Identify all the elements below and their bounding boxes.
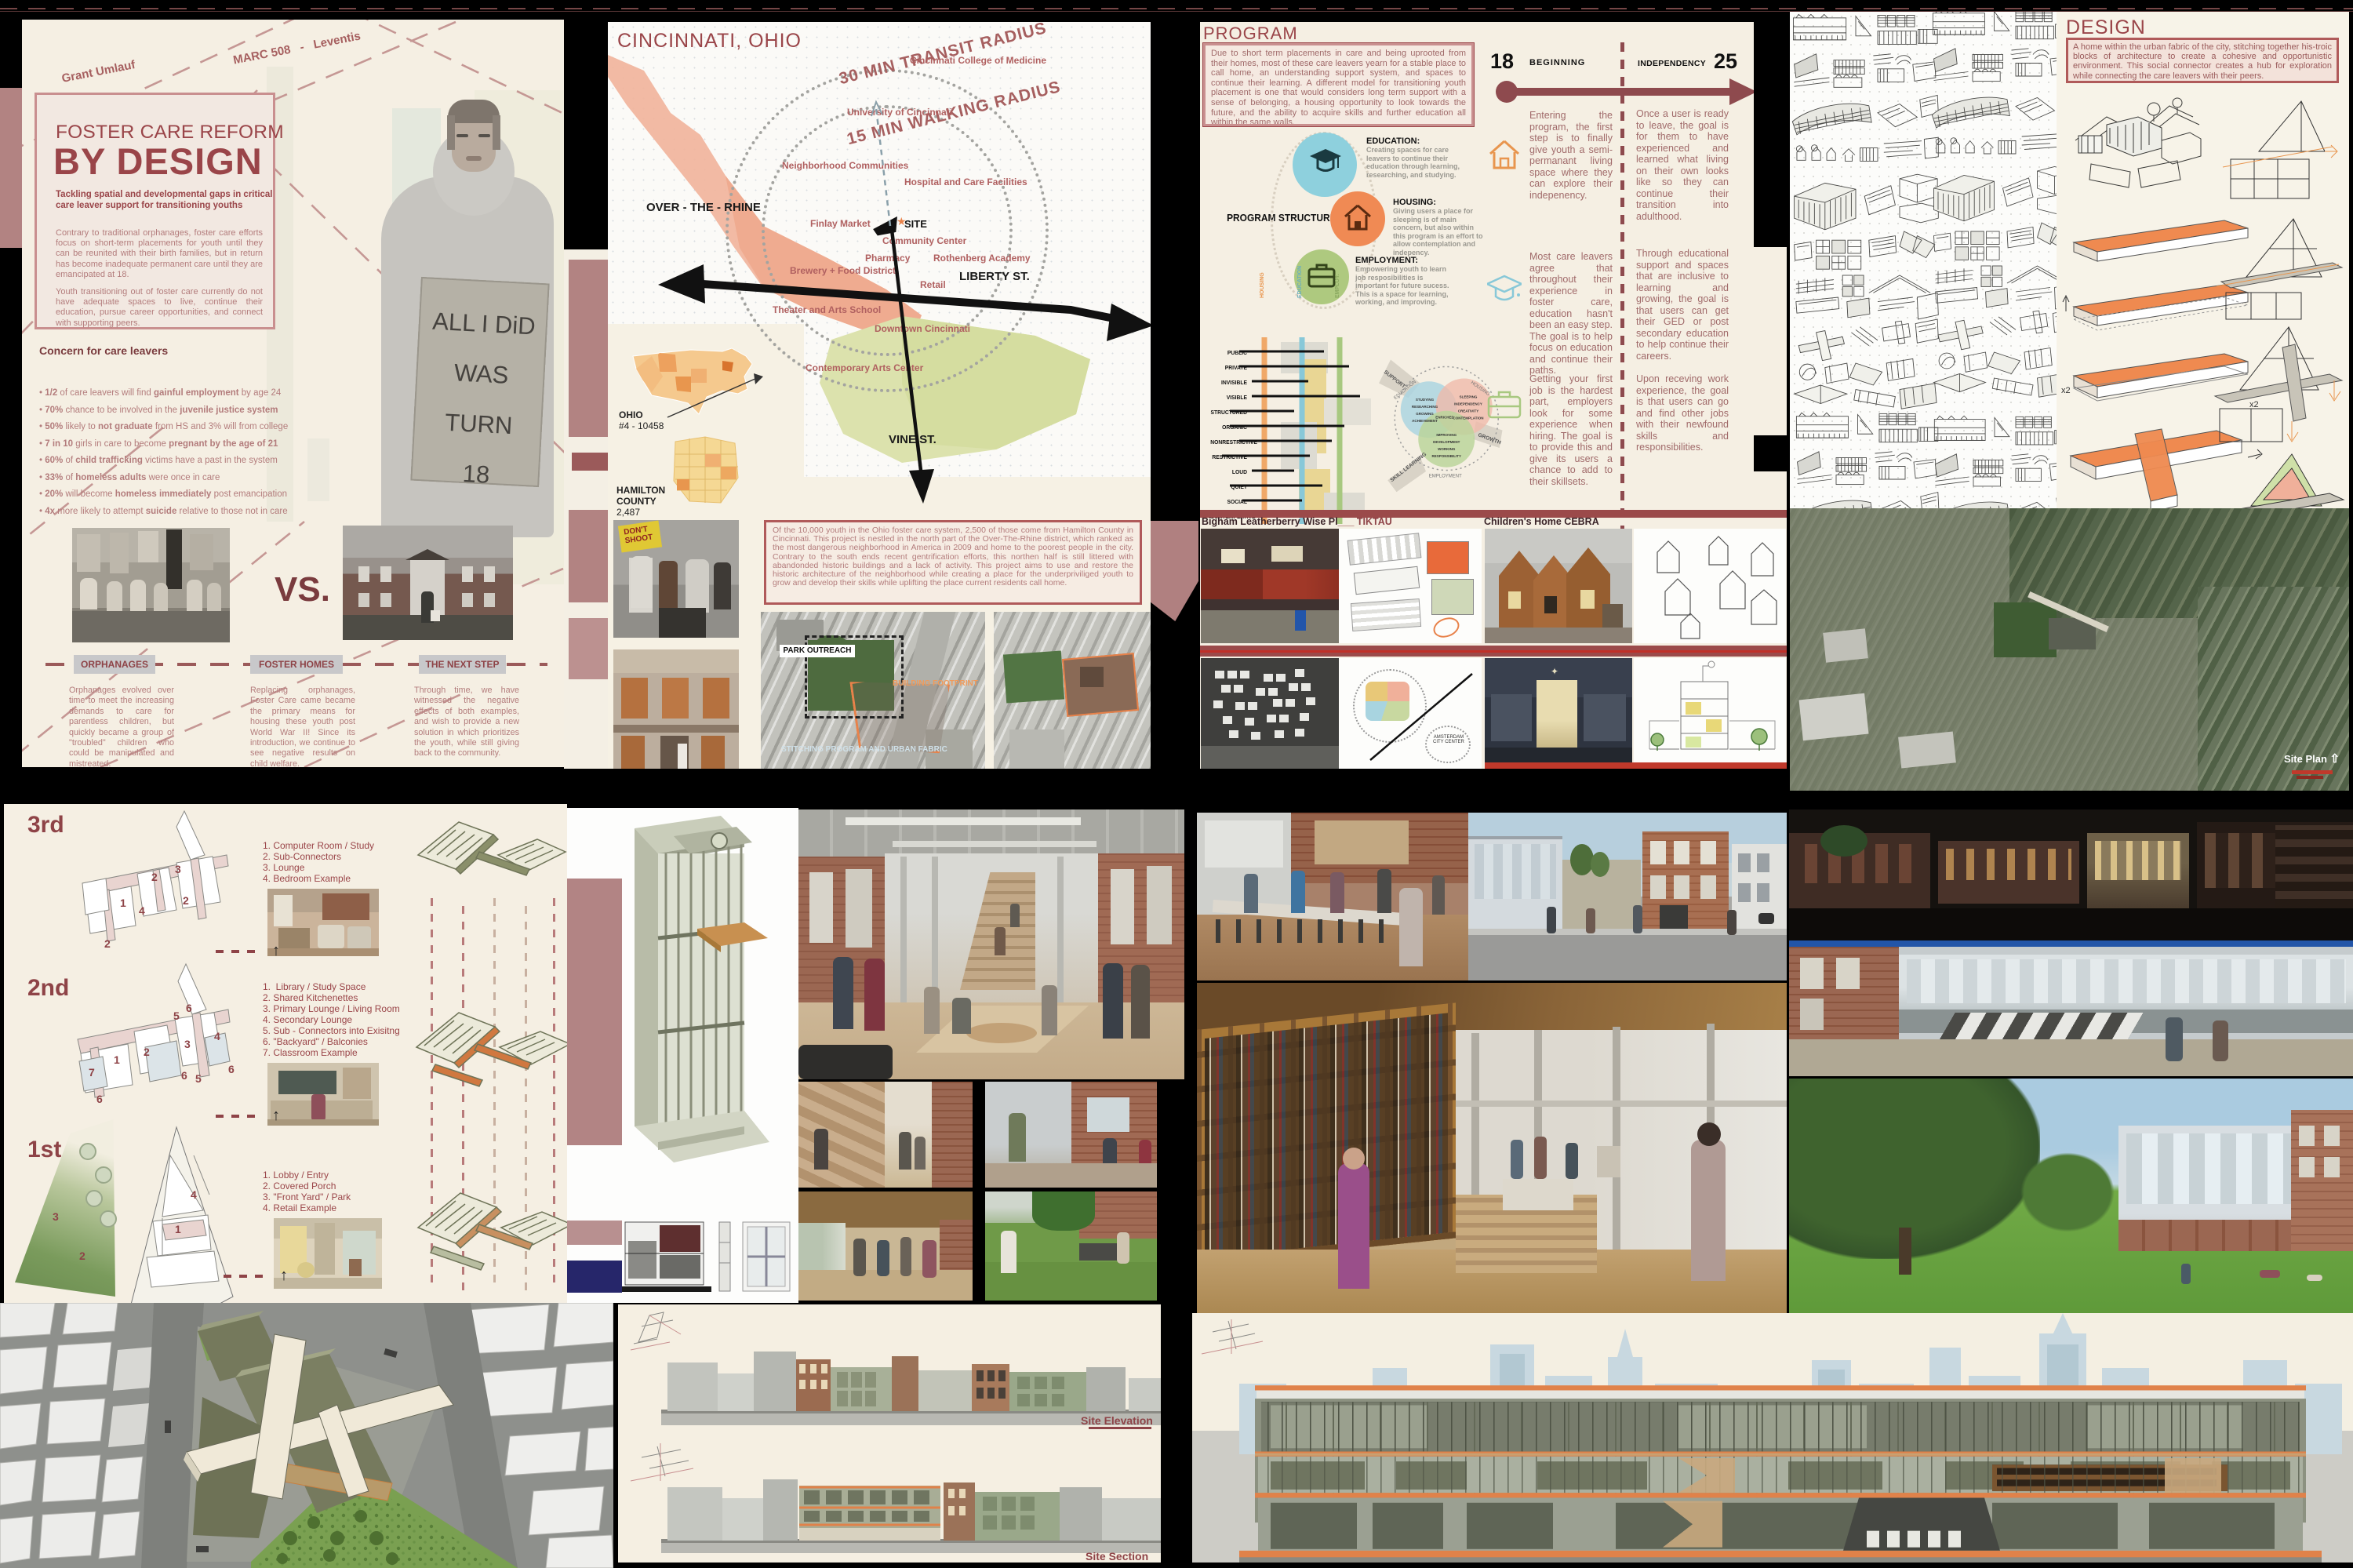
- svg-text:GROWING: GROWING: [1416, 412, 1434, 416]
- svg-text:DEVELOPMENT: DEVELOPMENT: [1433, 440, 1460, 444]
- svg-text:STUDYING: STUDYING: [1416, 398, 1435, 402]
- svg-text:RESEARCHING: RESEARCHING: [1412, 405, 1438, 409]
- svg-text:EMPLOYMENT: EMPLOYMENT: [1429, 475, 1462, 479]
- svg-text:CONTEMPLATION: CONTEMPLATION: [1453, 416, 1484, 420]
- svg-text:WORKING: WORKING: [1438, 447, 1456, 451]
- svg-text:x2: x2: [2061, 386, 2071, 395]
- svg-text:IMPROVING: IMPROVING: [1436, 433, 1457, 437]
- svg-text:CREATIVITY: CREATIVITY: [1458, 409, 1478, 413]
- svg-text:ACHIEVEMENT: ACHIEVEMENT: [1412, 419, 1438, 423]
- svg-text:INDEPENDENCY: INDEPENDENCY: [1454, 402, 1482, 406]
- svg-text:SLEEPING: SLEEPING: [1460, 395, 1478, 398]
- svg-text:ENRICHED: ENRICHED: [1435, 416, 1454, 420]
- svg-text:RESPONSIBILITY: RESPONSIBILITY: [1431, 454, 1461, 458]
